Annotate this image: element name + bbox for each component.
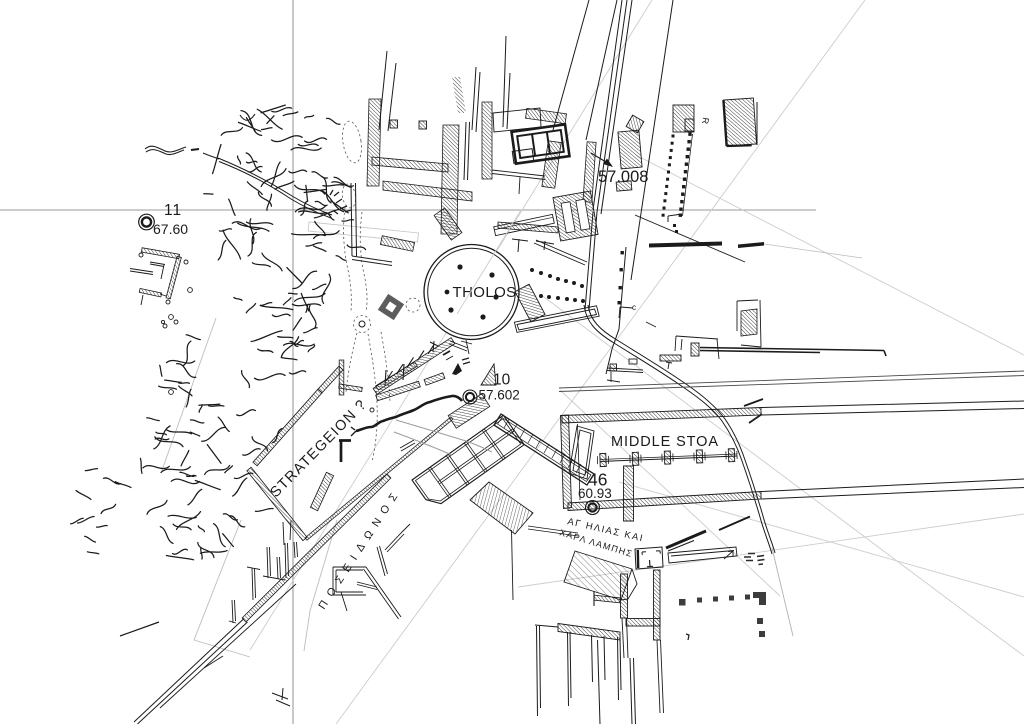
- svg-text:c: c: [632, 303, 636, 312]
- svg-text:67.60: 67.60: [153, 221, 188, 237]
- svg-text:60.93: 60.93: [578, 486, 612, 501]
- svg-text:THOLOS: THOLOS: [453, 284, 517, 301]
- svg-text:MIDDLE STOA: MIDDLE STOA: [611, 434, 719, 450]
- svg-text:11: 11: [164, 202, 182, 219]
